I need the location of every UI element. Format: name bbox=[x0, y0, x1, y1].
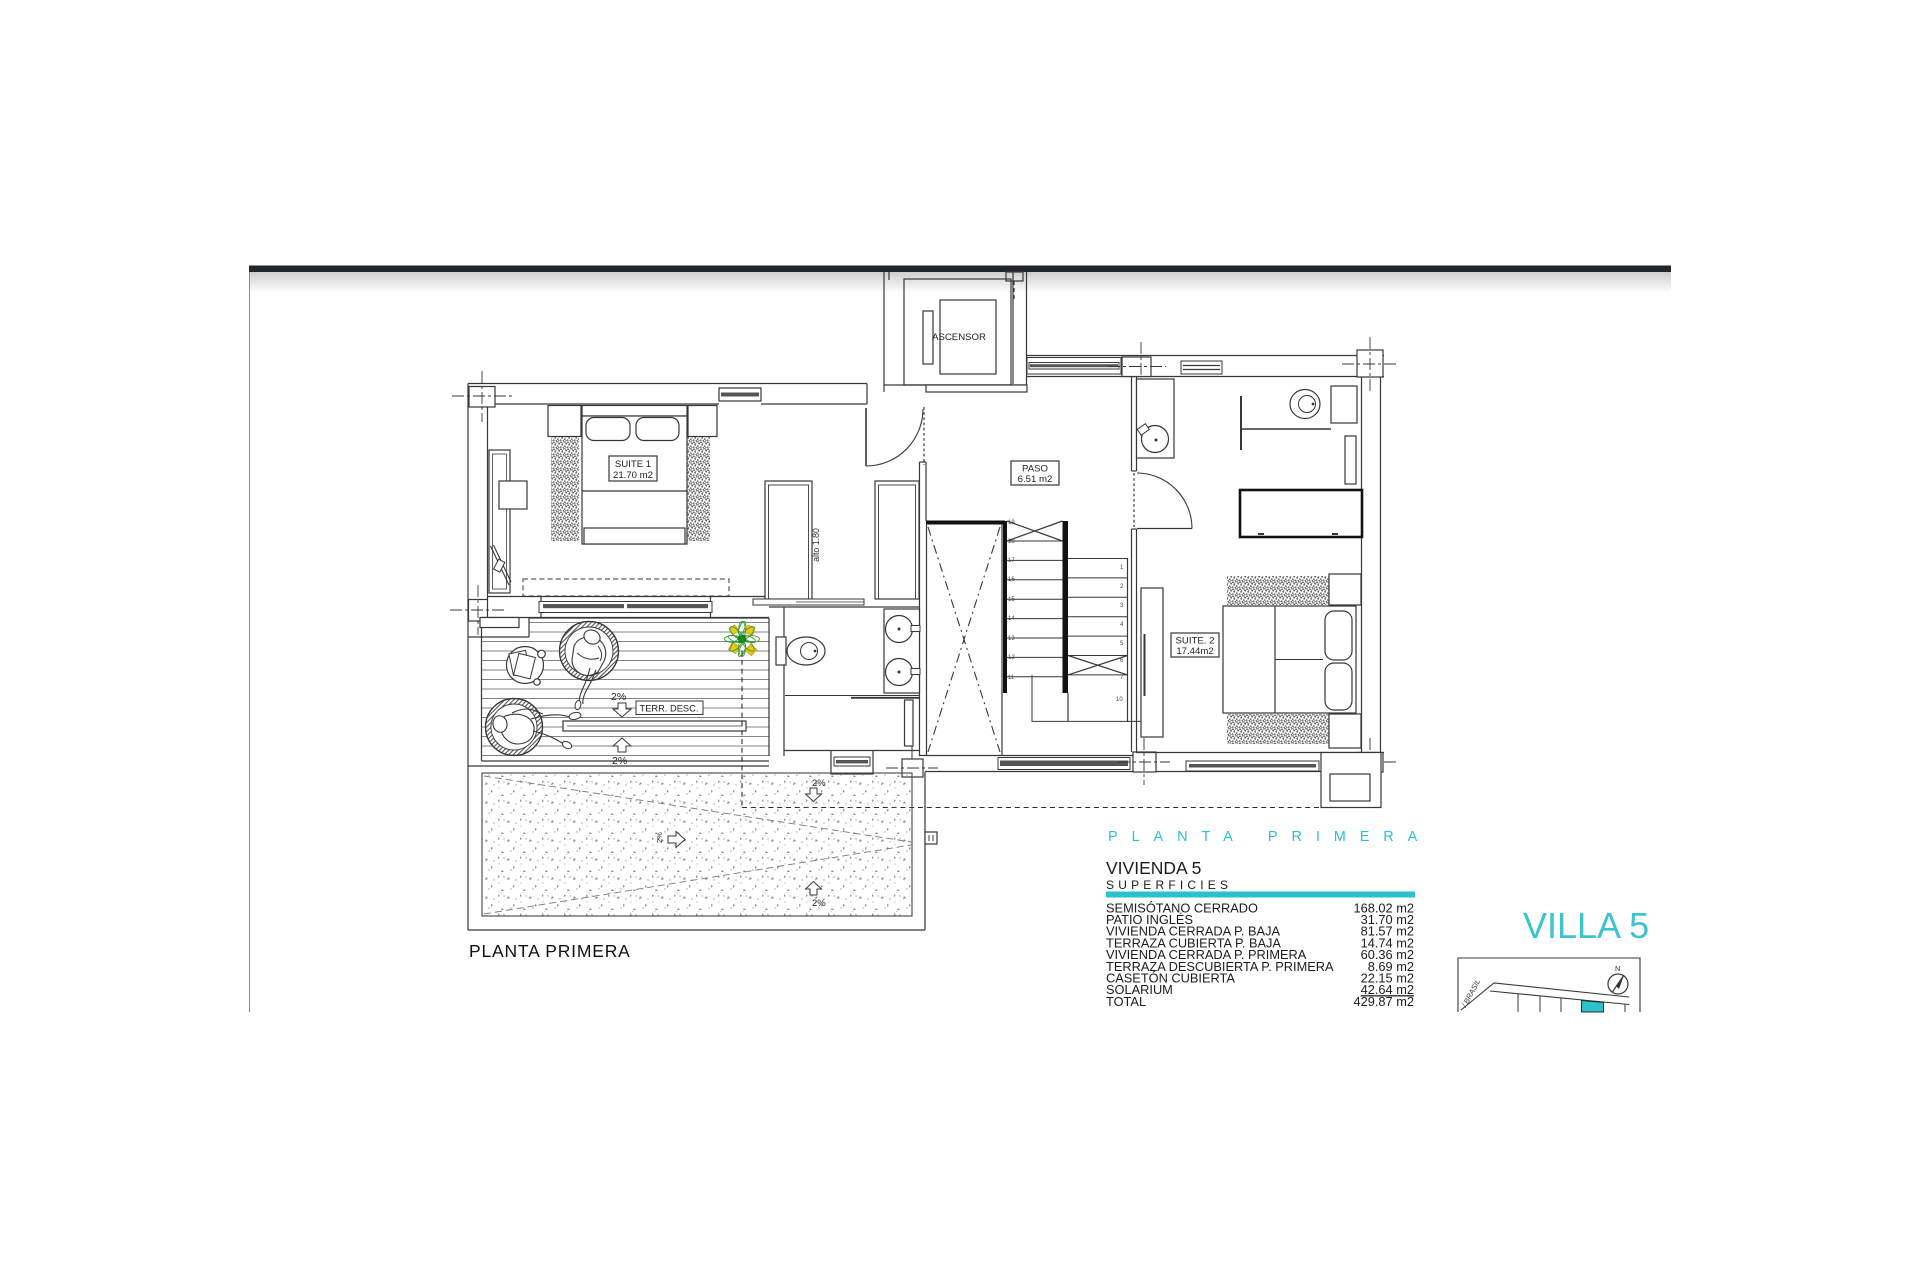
svg-text:2%: 2% bbox=[612, 755, 627, 767]
svg-text:6.51 m2: 6.51 m2 bbox=[1018, 474, 1053, 485]
svg-text:429.87 m2: 429.87 m2 bbox=[1354, 994, 1414, 1009]
svg-text:TOTAL: TOTAL bbox=[1106, 994, 1146, 1009]
svg-text:SUPERFICIES: SUPERFICIES bbox=[1106, 878, 1232, 892]
svg-text:2%: 2% bbox=[812, 898, 826, 909]
svg-text:13: 13 bbox=[1008, 636, 1015, 642]
svg-text:VILLA 5: VILLA 5 bbox=[1523, 905, 1649, 946]
svg-text:PASO: PASO bbox=[1022, 464, 1048, 475]
svg-text:SUITE. 2: SUITE. 2 bbox=[1176, 636, 1215, 647]
svg-text:15: 15 bbox=[1008, 597, 1015, 603]
svg-text:2%: 2% bbox=[812, 778, 826, 789]
svg-text:18: 18 bbox=[1008, 539, 1015, 545]
svg-text:VIVIENDA 5: VIVIENDA 5 bbox=[1106, 858, 1201, 878]
svg-text:17: 17 bbox=[1008, 558, 1015, 564]
svg-text:PLANTA PRIMERA: PLANTA PRIMERA bbox=[469, 941, 631, 961]
svg-text:14: 14 bbox=[1008, 616, 1015, 622]
svg-text:2%: 2% bbox=[655, 832, 664, 843]
svg-text:19: 19 bbox=[1008, 520, 1015, 526]
svg-text:2%: 2% bbox=[611, 691, 626, 703]
svg-text:11: 11 bbox=[1008, 675, 1015, 681]
svg-text:PLANTA PRIMERA: PLANTA PRIMERA bbox=[1108, 829, 1431, 845]
svg-text:SUITE 1: SUITE 1 bbox=[615, 459, 651, 470]
svg-text:16: 16 bbox=[1008, 577, 1015, 583]
svg-text:12: 12 bbox=[1008, 655, 1015, 661]
svg-text:ASCENSOR: ASCENSOR bbox=[932, 332, 986, 343]
svg-text:17.44m2: 17.44m2 bbox=[1176, 646, 1213, 657]
svg-text:alto 1.80: alto 1.80 bbox=[811, 528, 821, 562]
svg-text:N: N bbox=[1615, 964, 1620, 973]
svg-text:10: 10 bbox=[1116, 697, 1123, 703]
svg-text:21.70 m2: 21.70 m2 bbox=[613, 470, 653, 481]
svg-text:TERR. DESC.: TERR. DESC. bbox=[640, 704, 699, 714]
